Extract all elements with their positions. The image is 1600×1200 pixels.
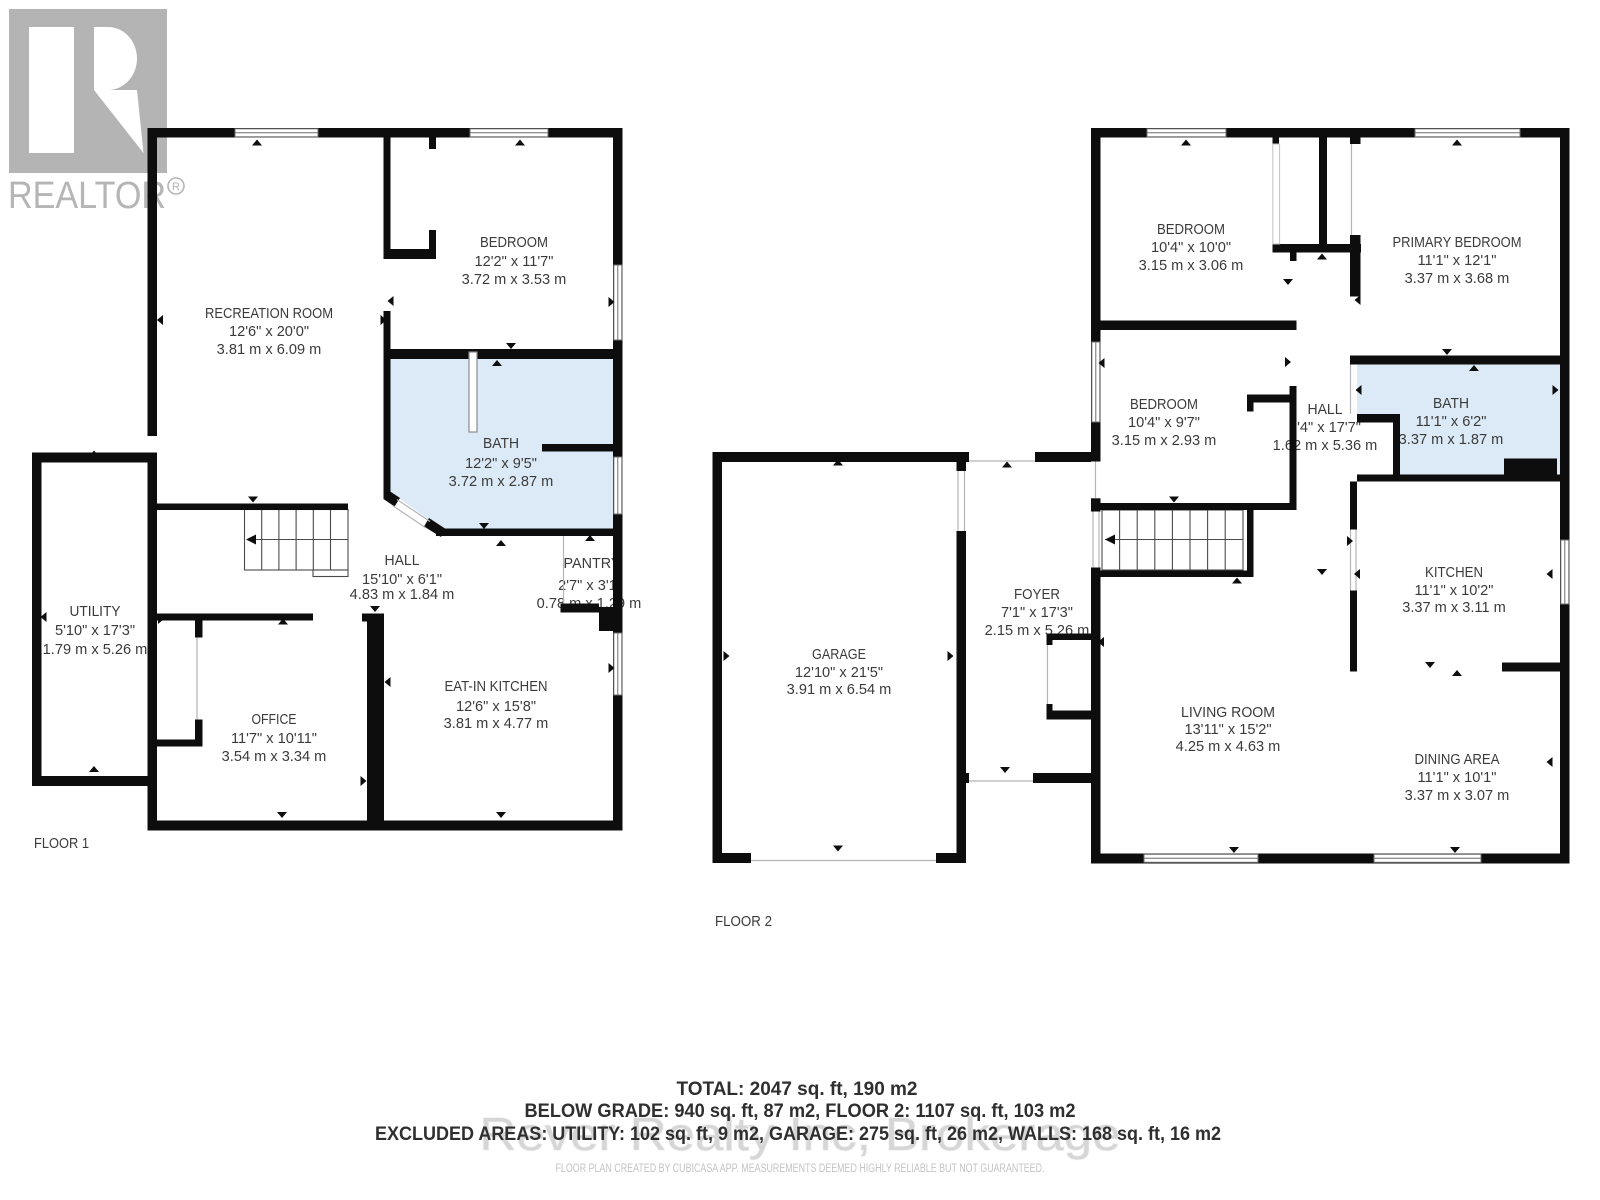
- svg-text:FOYER: FOYER: [1014, 586, 1060, 603]
- svg-text:12'2" x 9'5": 12'2" x 9'5": [465, 456, 537, 472]
- svg-text:3.37 m x 3.07 m: 3.37 m x 3.07 m: [1405, 788, 1510, 804]
- svg-text:OFFICE: OFFICE: [252, 711, 297, 728]
- svg-text:3.72 m x 2.87 m: 3.72 m x 2.87 m: [449, 474, 554, 490]
- svg-text:4.83 m x 1.84 m: 4.83 m x 1.84 m: [350, 587, 455, 603]
- svg-text:EXCLUDED AREAS: UTILITY: 102 s: EXCLUDED AREAS: UTILITY: 102 sq. ft, 9 m…: [375, 1123, 1221, 1145]
- svg-text:5'4" x 17'7": 5'4" x 17'7": [1289, 420, 1361, 436]
- svg-text:GARAGE: GARAGE: [812, 646, 866, 663]
- svg-text:HALL: HALL: [1308, 401, 1343, 418]
- svg-text:3.15 m x 3.06 m: 3.15 m x 3.06 m: [1139, 258, 1244, 274]
- svg-text:2'7" x 3'1": 2'7" x 3'1": [558, 578, 622, 594]
- svg-text:FLOOR 2: FLOOR 2: [715, 914, 772, 930]
- svg-text:4.25 m x 4.63 m: 4.25 m x 4.63 m: [1176, 739, 1281, 755]
- svg-text:TOTAL: 2047 sq. ft, 190 m2: TOTAL: 2047 sq. ft, 190 m2: [677, 1078, 918, 1100]
- svg-text:15'10" x 6'1": 15'10" x 6'1": [362, 572, 442, 588]
- svg-text:11'1" x 12'1": 11'1" x 12'1": [1418, 253, 1497, 269]
- svg-text:RECREATION ROOM: RECREATION ROOM: [205, 305, 333, 322]
- svg-text:3.91 m x 6.54 m: 3.91 m x 6.54 m: [787, 682, 892, 698]
- svg-text:12'6" x 20'0": 12'6" x 20'0": [229, 324, 309, 340]
- svg-text:BATH: BATH: [1433, 395, 1469, 412]
- svg-text:BELOW GRADE: 940 sq. ft, 87 m2: BELOW GRADE: 940 sq. ft, 87 m2, FLOOR 2:…: [525, 1100, 1076, 1122]
- svg-text:PRIMARY BEDROOM: PRIMARY BEDROOM: [1393, 234, 1522, 251]
- svg-text:12'10" x 21'5": 12'10" x 21'5": [795, 665, 883, 681]
- svg-text:11'1" x 10'1": 11'1" x 10'1": [1418, 770, 1497, 786]
- svg-text:BEDROOM: BEDROOM: [1157, 221, 1225, 238]
- svg-text:UTILITY: UTILITY: [70, 603, 121, 620]
- svg-text:KITCHEN: KITCHEN: [1425, 564, 1483, 581]
- svg-text:3.15 m x 2.93 m: 3.15 m x 2.93 m: [1112, 433, 1217, 449]
- svg-text:3.37 m x 3.68 m: 3.37 m x 3.68 m: [1405, 271, 1510, 287]
- svg-text:DINING AREA: DINING AREA: [1415, 751, 1500, 768]
- svg-text:LIVING ROOM: LIVING ROOM: [1181, 704, 1275, 721]
- svg-text:12'2" x 11'7": 12'2" x 11'7": [475, 254, 554, 270]
- svg-text:7'1" x 17'3": 7'1" x 17'3": [1001, 605, 1073, 621]
- svg-text:BEDROOM: BEDROOM: [1130, 396, 1198, 413]
- svg-text:FLOOR 1: FLOOR 1: [34, 836, 89, 852]
- svg-text:3.81 m x 4.77 m: 3.81 m x 4.77 m: [444, 716, 549, 732]
- svg-text:1.62 m x 5.36 m: 1.62 m x 5.36 m: [1273, 438, 1378, 454]
- svg-text:3.37 m x 1.87 m: 3.37 m x 1.87 m: [1399, 432, 1504, 448]
- svg-text:3.54 m x 3.34 m: 3.54 m x 3.34 m: [222, 749, 327, 765]
- svg-text:1.79 m x 5.26 m: 1.79 m x 5.26 m: [43, 642, 148, 658]
- svg-text:PANTRY: PANTRY: [564, 555, 621, 572]
- svg-text:5'10" x 17'3": 5'10" x 17'3": [55, 623, 135, 639]
- svg-text:11'7" x 10'11": 11'7" x 10'11": [231, 731, 317, 747]
- svg-text:11'1" x 10'2": 11'1" x 10'2": [1415, 583, 1494, 599]
- svg-text:10'4" x 9'7": 10'4" x 9'7": [1128, 415, 1200, 431]
- svg-text:R: R: [172, 181, 180, 193]
- svg-text:12'6" x 15'8": 12'6" x 15'8": [456, 699, 536, 715]
- svg-text:EAT-IN KITCHEN: EAT-IN KITCHEN: [445, 678, 548, 695]
- svg-text:10'4" x 10'0": 10'4" x 10'0": [1151, 240, 1231, 256]
- svg-text:BEDROOM: BEDROOM: [480, 234, 548, 251]
- svg-text:3.81 m x 6.09 m: 3.81 m x 6.09 m: [217, 342, 322, 358]
- svg-text:13'11" x 15'2": 13'11" x 15'2": [1184, 722, 1271, 738]
- svg-text:11'1" x 6'2": 11'1" x 6'2": [1416, 414, 1487, 430]
- svg-text:FLOOR PLAN CREATED BY CUBICASA: FLOOR PLAN CREATED BY CUBICASA APP. MEAS…: [556, 1163, 1045, 1175]
- svg-text:BATH: BATH: [483, 435, 519, 452]
- svg-text:HALL: HALL: [385, 552, 420, 569]
- svg-text:3.37 m x 3.11 m: 3.37 m x 3.11 m: [1402, 600, 1506, 616]
- svg-text:REALTOR: REALTOR: [8, 175, 166, 217]
- svg-text:3.72 m x 3.53 m: 3.72 m x 3.53 m: [462, 272, 567, 288]
